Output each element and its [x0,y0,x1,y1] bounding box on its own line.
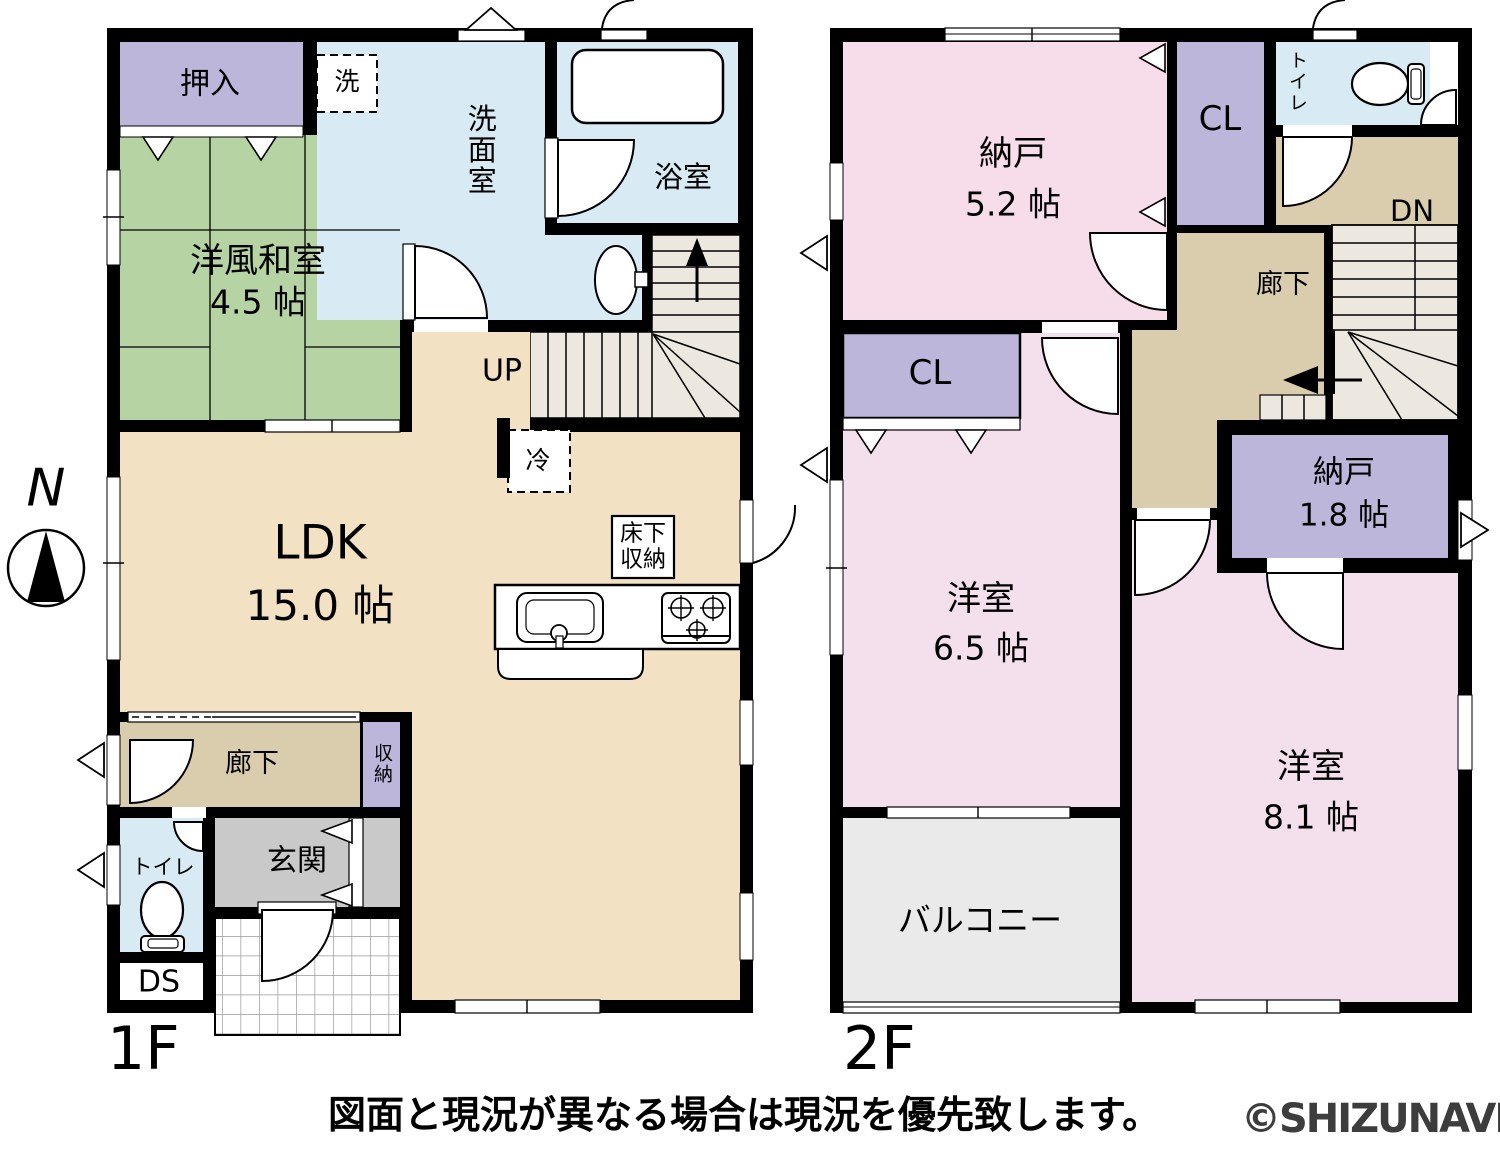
label-rouka-1f: 廊下 [225,750,279,778]
bathtub-icon [572,50,723,123]
label-washer: 洗 [334,69,359,95]
label-fridge: 冷 [525,448,550,474]
label-washitsu-name: 洋風和室 [190,244,326,280]
label-balcony: バルコニー [898,904,1062,939]
room-nando18 [1217,420,1463,573]
wall-stub [497,418,510,478]
floor-plan-page: N 押入 洋風和室 4.5 帖 洗 洗面室 浴室 UP 冷 LDK 15.0 帖… [0,0,1500,1153]
stair-wall-stub [1326,330,1335,394]
label-cl-top: CL [1199,102,1242,138]
label-nando18-name: 納戸 [1313,457,1375,490]
room-ldk-lower [412,712,740,1000]
label-nando52-size: 5.2 帖 [965,188,1061,223]
ldk-hall-slider [128,712,360,722]
label-yoshitsu81-size: 8.1 帖 [1263,801,1359,836]
label-ldk-size: 15.0 帖 [246,584,395,628]
label-nando52-name: 納戸 [979,137,1047,173]
watermark: ©SHIZUNAVI [1241,1098,1500,1140]
backdoor-1f [740,500,795,563]
label-senmenshitsu: 洗面室 [465,104,495,197]
label-washitsu-size: 4.5 帖 [210,286,306,321]
label-yokushitsu: 浴室 [654,162,712,192]
label-yoshitsu65-size: 6.5 帖 [933,632,1029,667]
label-rouka-2f: 廊下 [1256,271,1310,299]
disclaimer-caption: 図面と現況が異なる場合は現況を優先致します。 [328,1096,1160,1136]
toilet-2f-icon [1352,63,1424,105]
label-oshiire: 押入 [180,68,240,100]
label-genkan: 玄関 [267,845,327,877]
floor1-label: 1F [107,1018,180,1081]
floor2-label: 2F [843,1018,916,1081]
stairs-2f [1332,225,1458,420]
room-rouka-2f-c [1132,330,1217,508]
label-shuno: 収納 [371,743,391,785]
stairs-2f-west [1260,395,1326,420]
label-ldk-name: LDK [273,518,366,567]
floor1-plan [78,0,795,1035]
label-toilet-2f: トイレ [1286,51,1306,114]
stairs-1f-lower [530,332,740,418]
label-floor-storage: 床下収納 [613,521,673,573]
label-up: UP [482,355,522,387]
label-yoshitsu81-name: 洋室 [1277,750,1345,786]
label-ds: DS [138,966,180,998]
compass-icon [8,530,84,606]
label-dn: DN [1390,196,1434,226]
compass-label: N [27,462,66,517]
washitsu-slider [265,420,400,432]
label-yoshitsu65-name: 洋室 [947,582,1015,618]
floor-plan-graphics [0,0,1500,1153]
label-toilet-1f: トイレ [132,856,195,878]
toilet-1f-icon [141,882,184,952]
label-nando18-size: 1.8 帖 [1299,500,1389,533]
label-cl-left: CL [909,356,952,392]
